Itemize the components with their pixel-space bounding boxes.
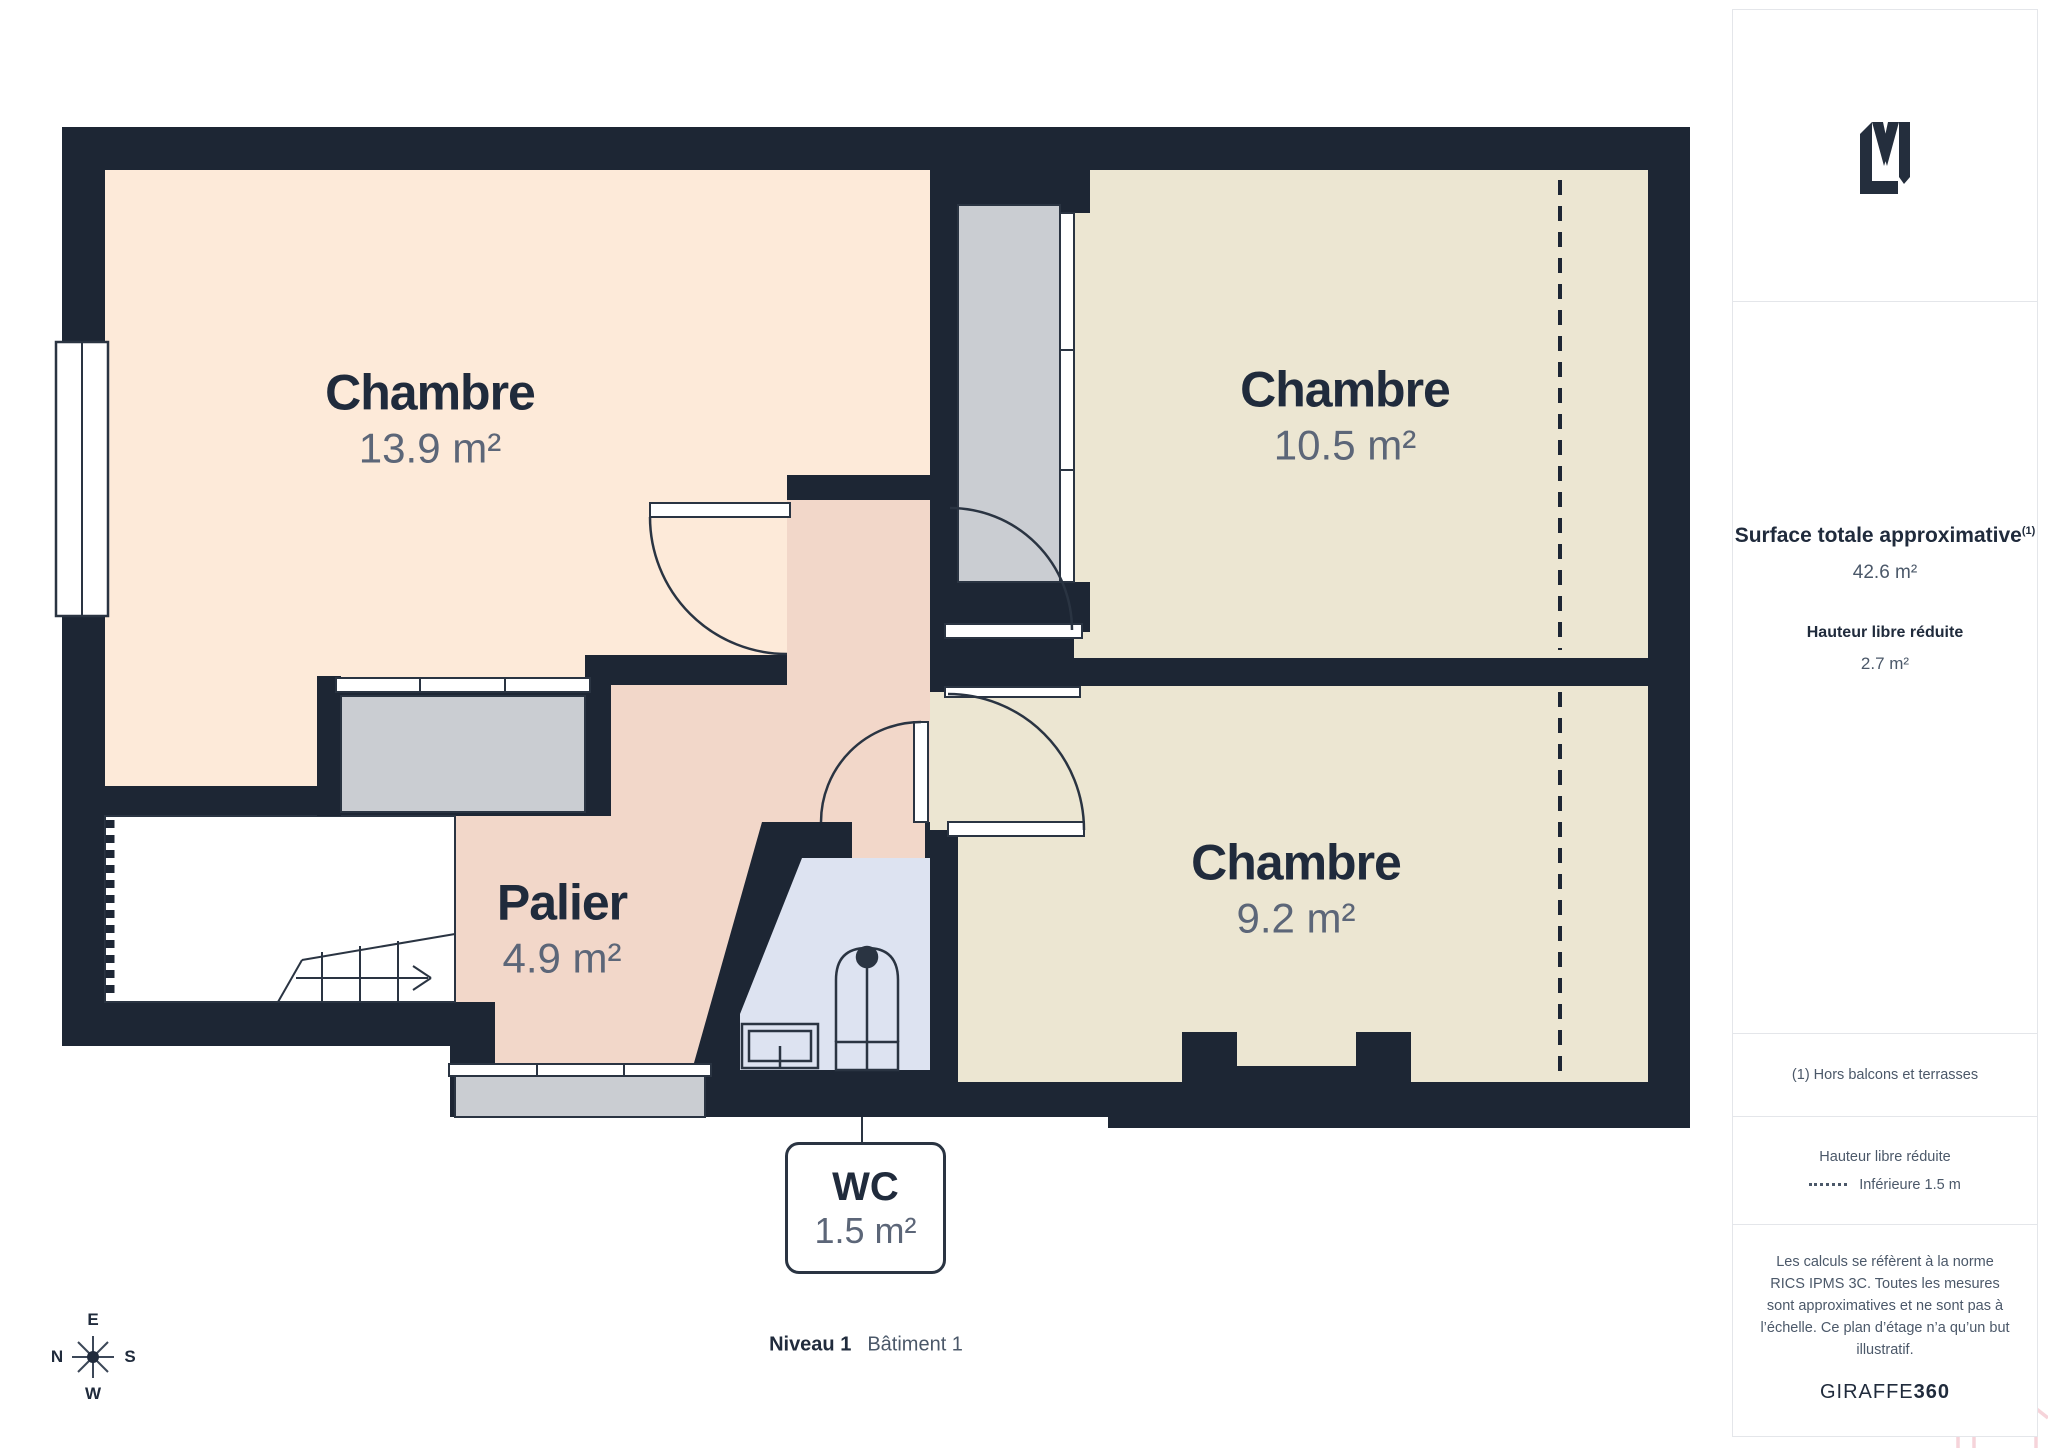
level-label: Niveau 1 bbox=[769, 1334, 851, 1356]
footnote-text: (1) Hors balcons et terrasses bbox=[1792, 1067, 1978, 1083]
surface-title-sup: (1) bbox=[2022, 525, 2035, 537]
window-bay-south-chambre-1 bbox=[336, 678, 590, 812]
wall-segment bbox=[930, 830, 958, 1082]
window-bay-center bbox=[958, 205, 1074, 582]
building-label: Bâtiment 1 bbox=[867, 1334, 963, 1356]
level-caption: Niveau 1Bâtiment 1 bbox=[769, 1334, 963, 1357]
room-label-wc-callout: WC 1.5 m² bbox=[785, 1142, 946, 1274]
window-bay-south-palier bbox=[449, 1064, 711, 1117]
lm-logo-icon bbox=[1857, 117, 1913, 195]
legend-row: Inférieure 1.5 m bbox=[1809, 1177, 1961, 1193]
disclaimer-section: Les calculs se réfèrent à la norme RICS … bbox=[1733, 1224, 2037, 1404]
legend-section: Hauteur libre réduite Inférieure 1.5 m bbox=[1733, 1116, 2037, 1224]
surface-title: Surface totale approximative(1) bbox=[1733, 524, 2037, 548]
floorplan-page: Chambre 13.9 m² Chambre 10.5 m² Chambre … bbox=[0, 0, 2048, 1448]
disclaimer-text: Les calculs se réfèrent à la norme RICS … bbox=[1759, 1251, 2011, 1361]
compass-south: S bbox=[124, 1347, 135, 1367]
room-name: WC bbox=[832, 1167, 899, 1207]
wall-pier bbox=[317, 676, 341, 816]
legend-item-text: Inférieure 1.5 m bbox=[1859, 1177, 1961, 1193]
window-west bbox=[56, 342, 108, 616]
brand-logo: GIRAFFE360 bbox=[1733, 1381, 2037, 1404]
info-sidebar: Surface totale approximative(1) 42.6 m² … bbox=[1732, 9, 2038, 1437]
room-floor-chambre-3 bbox=[930, 686, 1648, 1082]
surface-value: 42.6 m² bbox=[1733, 562, 2037, 584]
reduced-height-value: 2.7 m² bbox=[1733, 654, 2037, 674]
footnote-section: (1) Hors balcons et terrasses bbox=[1733, 1033, 2037, 1116]
compass-north: N bbox=[51, 1347, 63, 1367]
legend-title: Hauteur libre réduite bbox=[1819, 1149, 1950, 1165]
surface-section: Surface totale approximative(1) 42.6 m² … bbox=[1733, 301, 2037, 1033]
compass-west: W bbox=[85, 1384, 101, 1404]
logo-section bbox=[1733, 10, 2037, 301]
wc-door-opening bbox=[852, 822, 925, 858]
reduced-height-title: Hauteur libre réduite bbox=[1733, 624, 2037, 642]
compass-east: E bbox=[87, 1310, 98, 1330]
brand-text-bold: 360 bbox=[1914, 1381, 1950, 1403]
dashed-line-sample bbox=[1809, 1183, 1847, 1186]
wall-segment bbox=[930, 630, 958, 692]
brand-text: GIRAFFE bbox=[1820, 1381, 1914, 1403]
room-area: 1.5 m² bbox=[814, 1213, 916, 1249]
compass-rose: E N S W bbox=[40, 1305, 150, 1415]
chimney-niche-inset bbox=[1237, 1032, 1356, 1066]
wall-segment bbox=[1060, 170, 1090, 213]
stairwell-void bbox=[105, 816, 455, 1002]
surface-title-text: Surface totale approximative bbox=[1735, 524, 2022, 547]
